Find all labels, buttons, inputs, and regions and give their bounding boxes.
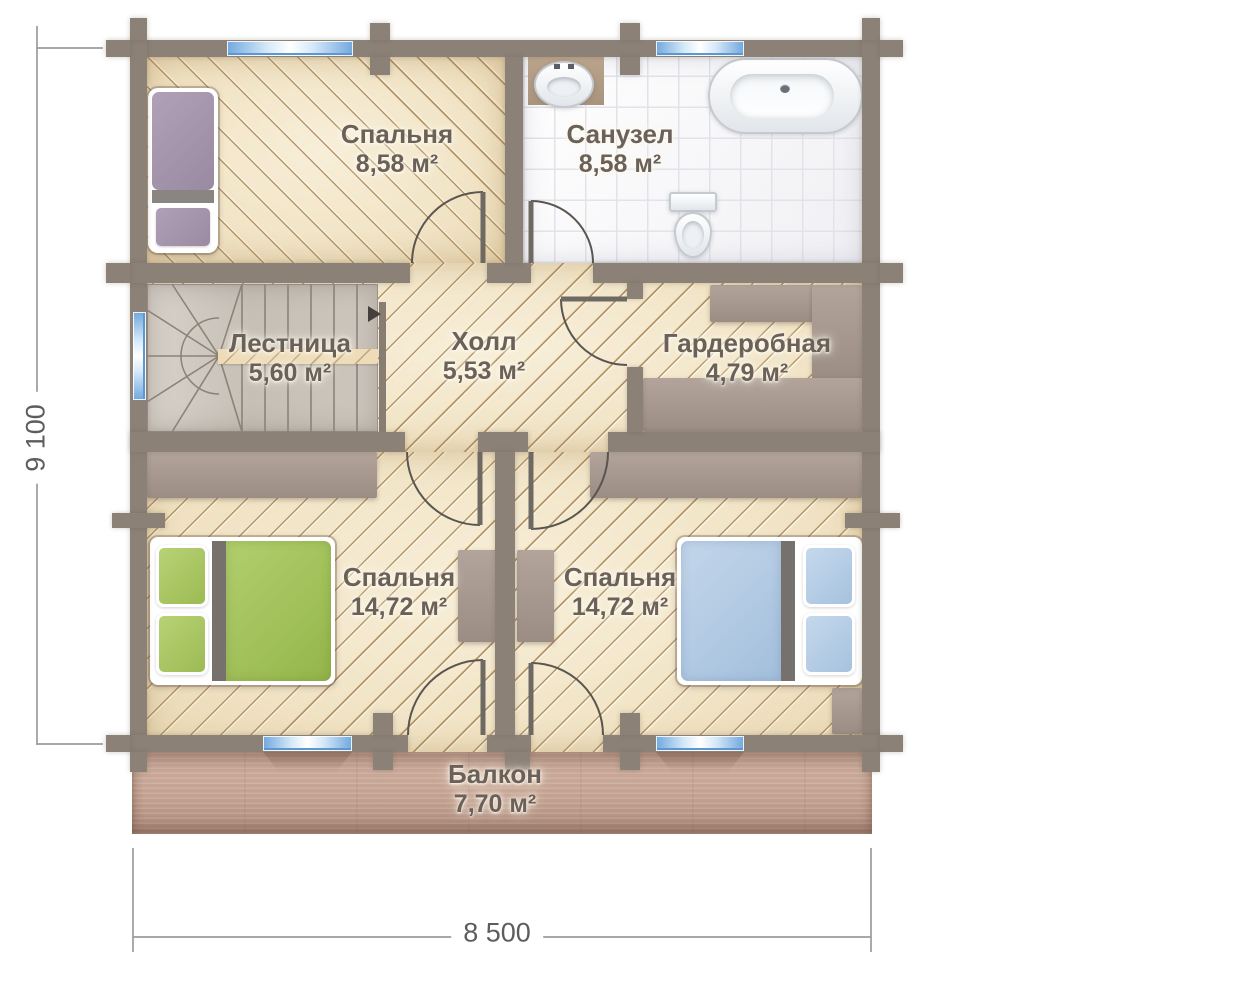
room-label-wardrobe: Гардеробная 4,79 м² — [663, 329, 831, 387]
wall-bottom-segment — [487, 735, 531, 752]
room-label-bedroom-left: Спальня 14,72 м² — [343, 563, 455, 621]
room-label-balcony: Балкон 7,70 м² — [448, 760, 542, 818]
log-stub — [862, 18, 880, 40]
wardrobe-shelf-top — [710, 285, 815, 322]
double-bed-green — [150, 537, 335, 685]
bed-pillow — [156, 208, 210, 246]
wall-mid1-segment — [593, 263, 880, 283]
wall-mid2-segment — [130, 432, 405, 452]
window — [656, 736, 744, 751]
window — [656, 41, 744, 56]
log-stub — [845, 513, 900, 528]
wall-mid1-segment — [130, 263, 410, 283]
log-stub — [370, 57, 390, 75]
log-stub — [106, 40, 130, 57]
log-stub — [620, 752, 640, 770]
window — [133, 312, 146, 400]
room-name: Холл — [443, 327, 525, 357]
wall-wardrobe-segment — [627, 367, 643, 432]
bed-blanket — [681, 541, 781, 681]
room-area: 4,79 м² — [663, 359, 831, 388]
sink — [534, 61, 594, 108]
faucet-icon — [554, 64, 560, 69]
bed-pillow — [156, 545, 208, 607]
bed-blanket — [226, 541, 331, 681]
bathtub-basin — [730, 74, 834, 118]
drain-icon — [780, 84, 790, 93]
bed-pillow — [803, 545, 855, 607]
bed-blanket — [152, 92, 214, 190]
room-name: Спальня — [343, 563, 455, 593]
log-stub — [370, 23, 390, 40]
window — [263, 736, 352, 751]
sink-basin — [547, 77, 581, 97]
room-area: 7,70 м² — [448, 790, 542, 819]
room-area: 5,60 м² — [229, 359, 351, 388]
dresser-right — [517, 550, 554, 642]
log-stub — [106, 735, 130, 752]
log-stub — [880, 263, 903, 283]
log-stub — [130, 18, 147, 40]
room-label-bedroom-top: Спальня 8,58 м² — [341, 120, 453, 178]
bed-headrail — [781, 541, 795, 681]
log-stub — [620, 23, 640, 40]
stair-railing — [379, 302, 386, 432]
log-stub — [620, 713, 640, 735]
log-stub — [112, 513, 165, 528]
room-label-staircase: Лестница 5,60 м² — [229, 329, 351, 387]
wall-mid2-segment — [478, 432, 528, 452]
room-label-bathroom: Санузел 8,58 м² — [567, 120, 674, 178]
bathtub — [708, 58, 863, 134]
bed-pillow — [803, 613, 855, 675]
room-name: Лестница — [229, 329, 351, 359]
log-stub — [373, 752, 393, 770]
closet-left-bedroom — [147, 452, 377, 498]
toilet-bowl — [682, 221, 704, 249]
log-stub — [130, 752, 147, 772]
room-area: 14,72 м² — [564, 593, 676, 622]
bed-headrail — [152, 190, 214, 203]
dimension-width-label: 8 500 — [451, 918, 543, 949]
room-name: Гардеробная — [663, 329, 831, 359]
room-label-hall: Холл 5,53 м² — [443, 327, 525, 385]
double-bed-blue — [677, 537, 862, 685]
wall-mid2-segment — [608, 432, 880, 452]
room-area: 8,58 м² — [341, 150, 453, 179]
room-area: 5,53 м² — [443, 357, 525, 386]
faucet-icon — [568, 64, 574, 69]
corner-cabinet — [832, 688, 862, 734]
log-stub — [106, 263, 130, 283]
log-stub — [620, 57, 640, 75]
closet-right-bedroom — [590, 452, 862, 498]
wall-bathroom-partition — [505, 57, 523, 263]
room-name: Санузел — [567, 120, 674, 150]
wall-right — [862, 40, 880, 752]
window — [227, 41, 353, 56]
log-stub — [862, 752, 880, 772]
dresser-left — [458, 550, 495, 642]
room-label-bedroom-right: Спальня 14,72 м² — [564, 563, 676, 621]
room-area: 14,72 м² — [343, 593, 455, 622]
room-name: Спальня — [564, 563, 676, 593]
log-stub — [373, 713, 393, 735]
wall-wardrobe-segment — [627, 283, 643, 299]
single-bed — [148, 88, 218, 253]
floor-plan: Спальня 8,58 м² Санузел 8,58 м² Лестница… — [0, 0, 1250, 1000]
dimension-height-label: 9 100 — [21, 392, 52, 484]
log-stub — [880, 735, 903, 752]
toilet-tank — [669, 192, 717, 212]
room-name: Балкон — [448, 760, 542, 790]
bed-headrail — [212, 541, 226, 681]
log-stub — [880, 40, 903, 57]
wall-mid1-segment — [487, 263, 531, 283]
wall-bedroom-partition — [495, 452, 515, 735]
room-area: 8,58 м² — [567, 150, 674, 179]
room-name: Спальня — [341, 120, 453, 150]
bed-pillow — [156, 613, 208, 675]
